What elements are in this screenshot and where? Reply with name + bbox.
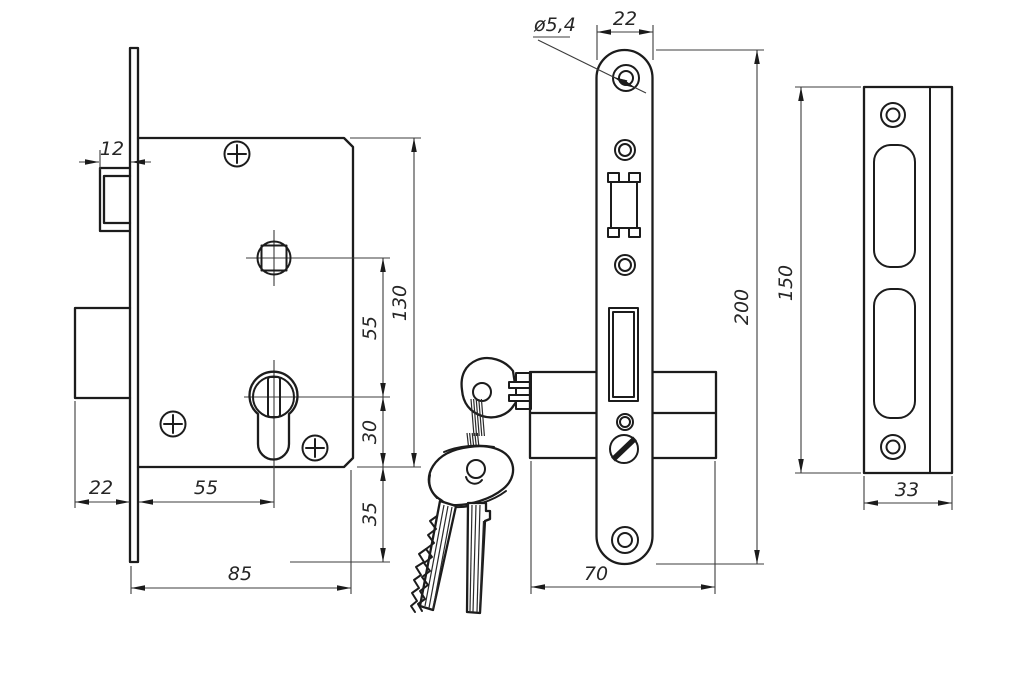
key-bunch — [411, 358, 531, 613]
lock-front-view: ø5,4 22 200 70 — [530, 8, 764, 594]
dim-label-faceplate-width: 22 — [613, 8, 637, 30]
inserted-key-bit-2 — [509, 395, 531, 401]
strike-latch-opening — [874, 145, 915, 267]
technical-drawing-page: 12 22 55 85 55 30 — [0, 0, 1024, 682]
spindle-hole — [246, 230, 390, 286]
latch-bolt-side — [100, 168, 130, 231]
dimension-case-width-side: 85 — [131, 470, 351, 594]
dimension-deadbolt-throw: 22 — [75, 401, 130, 508]
dim-label-deadbolt-throw: 22 — [89, 477, 113, 499]
dim-label-case-width-front: 70 — [584, 563, 608, 585]
deadbolt-side — [75, 308, 130, 398]
inserted-key-shoulder — [516, 373, 531, 409]
dim-label-plate-width: 33 — [895, 479, 919, 501]
dimension-faceplate-length: 200 — [656, 50, 764, 564]
dimension-case-height: 130 — [350, 138, 421, 467]
lock-case-side — [138, 138, 353, 467]
dim-label-spindle-to-cylinder: 55 — [359, 316, 381, 340]
dim-label-screw-hole-diameter: ø5,4 — [533, 14, 576, 36]
dim-label-case-width-side: 85 — [228, 563, 252, 585]
lock-case-front-right — [653, 372, 716, 458]
lock-case-front-left — [530, 372, 596, 458]
dim-label-latch-depth: 12 — [100, 138, 124, 160]
dim-label-plate-length: 150 — [775, 265, 797, 301]
dimension-faceplate-to-cylinder: 55 — [139, 472, 274, 508]
mounting-screw-left — [161, 412, 186, 437]
mounting-screw-top — [225, 142, 250, 167]
faceplate-side — [130, 48, 138, 562]
strike-deadbolt-opening — [874, 289, 915, 418]
dimension-plate-length: 150 — [775, 87, 861, 473]
strike-screw-hole-bottom — [881, 435, 905, 459]
technical-drawing-canvas: 12 22 55 85 55 30 — [0, 0, 1024, 682]
dim-label-case-height: 130 — [389, 285, 411, 321]
dim-label-faceplate-to-cylinder: 55 — [194, 477, 218, 499]
lock-side-view: 12 22 55 85 55 30 — [75, 48, 421, 594]
dimension-plate-width: 33 — [864, 476, 952, 510]
strike-plate-view: 150 33 — [775, 87, 952, 510]
dimension-latch-depth: 12 — [79, 138, 151, 170]
dim-label-case-bottom-to-faceplate-end: 35 — [359, 502, 381, 526]
dim-label-faceplate-length: 200 — [731, 289, 753, 325]
euro-cylinder-keyhole — [244, 360, 390, 472]
strike-screw-hole-top — [881, 103, 905, 127]
dim-label-cylinder-to-case-bottom: 30 — [359, 420, 381, 444]
inserted-key-bit-1 — [509, 382, 531, 388]
mounting-screw-right — [303, 436, 328, 461]
